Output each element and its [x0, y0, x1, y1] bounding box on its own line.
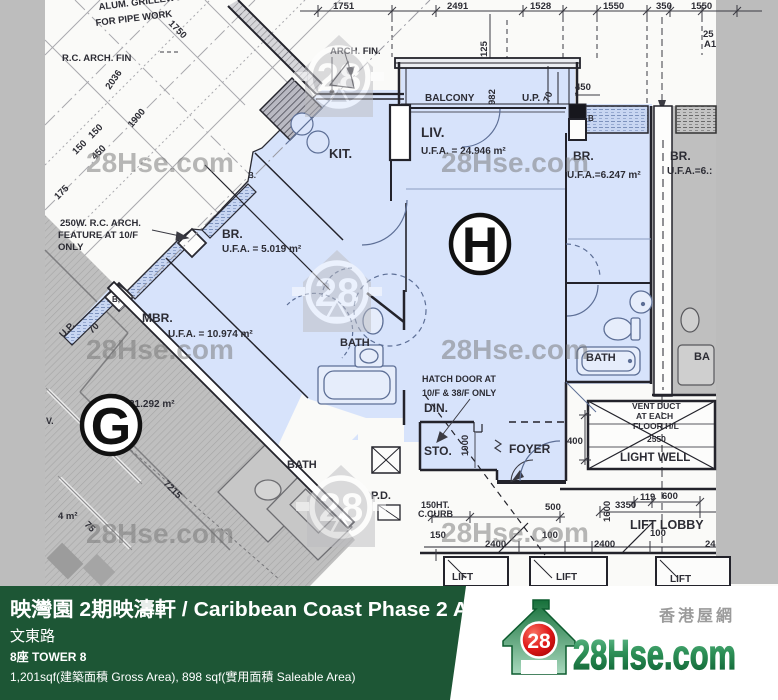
- svg-text:HATCH DOOR AT: HATCH DOOR AT: [422, 374, 496, 384]
- svg-text:24: 24: [705, 539, 716, 550]
- svg-text:B,: B,: [112, 295, 120, 304]
- svg-text:U.F.A. = 5.019 m²: U.F.A. = 5.019 m²: [222, 244, 302, 255]
- svg-text:2400: 2400: [594, 539, 615, 550]
- svg-text:H: H: [462, 217, 498, 273]
- svg-text:U.F.A.=6.:: U.F.A.=6.:: [667, 166, 712, 177]
- svg-text:BALCONY: BALCONY: [425, 93, 475, 104]
- svg-text:DIN.: DIN.: [424, 401, 448, 415]
- svg-text:LIV.: LIV.: [421, 125, 445, 140]
- svg-text:映灣園 2期映濤軒 / Caribbean Coast Ph: 映灣園 2期映濤軒 / Caribbean Coast Phase 2 All: [10, 597, 480, 621]
- svg-text:400: 400: [567, 436, 583, 447]
- svg-text:LIFT: LIFT: [670, 574, 691, 585]
- svg-text:文東路: 文東路: [10, 628, 55, 645]
- svg-text:8座 TOWER 8: 8座 TOWER 8: [10, 649, 87, 664]
- svg-text:LIFT LOBBY: LIFT LOBBY: [630, 518, 704, 532]
- svg-text:28: 28: [319, 486, 364, 530]
- svg-text:B.: B.: [248, 171, 256, 180]
- svg-text:LIFT: LIFT: [556, 572, 577, 583]
- svg-text:STO.: STO.: [424, 444, 452, 458]
- svg-text:BA: BA: [694, 351, 710, 363]
- svg-text:3350: 3350: [615, 500, 636, 511]
- svg-text:ONLY: ONLY: [58, 242, 84, 253]
- svg-text:G: G: [91, 398, 131, 456]
- svg-text:28: 28: [315, 271, 360, 315]
- svg-text:U.P.: U.P.: [522, 93, 540, 104]
- svg-text:BATH: BATH: [287, 459, 317, 471]
- svg-text:香港屋網: 香港屋網: [658, 606, 735, 625]
- svg-text:FLOOR H/L: FLOOR H/L: [633, 421, 679, 431]
- svg-text:1000: 1000: [460, 435, 471, 456]
- svg-text:982: 982: [487, 89, 498, 105]
- svg-text:28Hse.com: 28Hse.com: [441, 147, 589, 178]
- svg-text:28Hse.com: 28Hse.com: [86, 518, 234, 549]
- svg-text:BR.: BR.: [222, 227, 243, 241]
- svg-text:119: 119: [640, 492, 655, 503]
- svg-text:28: 28: [527, 630, 551, 653]
- svg-text:A1: A1: [704, 39, 717, 50]
- svg-text:1,201sqf(建築面積 Gross Area), 898: 1,201sqf(建築面積 Gross Area), 898 sqf(實用面積 …: [10, 669, 355, 684]
- svg-text:BR.: BR.: [670, 149, 691, 163]
- svg-text:250W. R.C. ARCH.: 250W. R.C. ARCH.: [60, 218, 141, 229]
- svg-text:28: 28: [317, 56, 362, 100]
- svg-text:450: 450: [575, 82, 591, 93]
- svg-text:KIT.: KIT.: [329, 146, 352, 161]
- svg-text:1528: 1528: [530, 1, 551, 12]
- svg-text:28Hse.com: 28Hse.com: [441, 517, 589, 548]
- svg-text:B: B: [588, 114, 594, 123]
- svg-text:VENT DUCT: VENT DUCT: [632, 401, 681, 411]
- svg-text:BATH: BATH: [340, 337, 370, 349]
- svg-text:LIFT: LIFT: [452, 572, 473, 583]
- svg-text:1600: 1600: [602, 501, 613, 522]
- svg-text:BATH: BATH: [586, 352, 616, 364]
- svg-text:AT EACH: AT EACH: [636, 411, 673, 421]
- svg-text:MBR.: MBR.: [142, 311, 173, 325]
- svg-text:28Hse.com: 28Hse.com: [573, 631, 736, 678]
- svg-text:4 m²: 4 m²: [58, 511, 78, 522]
- svg-text:R.C. ARCH. FIN: R.C. ARCH. FIN: [62, 53, 131, 64]
- svg-text:28Hse.com: 28Hse.com: [86, 334, 234, 365]
- svg-text:FEATURE AT 10/F: FEATURE AT 10/F: [58, 230, 138, 241]
- svg-text:1751: 1751: [333, 1, 355, 12]
- svg-text:V.: V.: [46, 416, 54, 426]
- svg-text:1550: 1550: [691, 1, 712, 12]
- svg-text:10/F & 38/F ONLY: 10/F & 38/F ONLY: [422, 388, 496, 398]
- svg-text:28Hse.com: 28Hse.com: [86, 147, 234, 178]
- svg-text:125: 125: [479, 40, 490, 57]
- svg-text:2550: 2550: [647, 434, 666, 444]
- svg-text:500: 500: [545, 502, 561, 513]
- svg-text:600: 600: [662, 491, 678, 502]
- svg-text:1550: 1550: [603, 1, 624, 12]
- svg-text:350: 350: [656, 1, 672, 12]
- svg-text:28Hse.com: 28Hse.com: [441, 334, 589, 365]
- svg-text:FOYER: FOYER: [509, 442, 551, 456]
- svg-text:2491: 2491: [447, 1, 469, 12]
- svg-text:100: 100: [650, 528, 666, 539]
- svg-text:LIGHT WELL: LIGHT WELL: [620, 452, 690, 464]
